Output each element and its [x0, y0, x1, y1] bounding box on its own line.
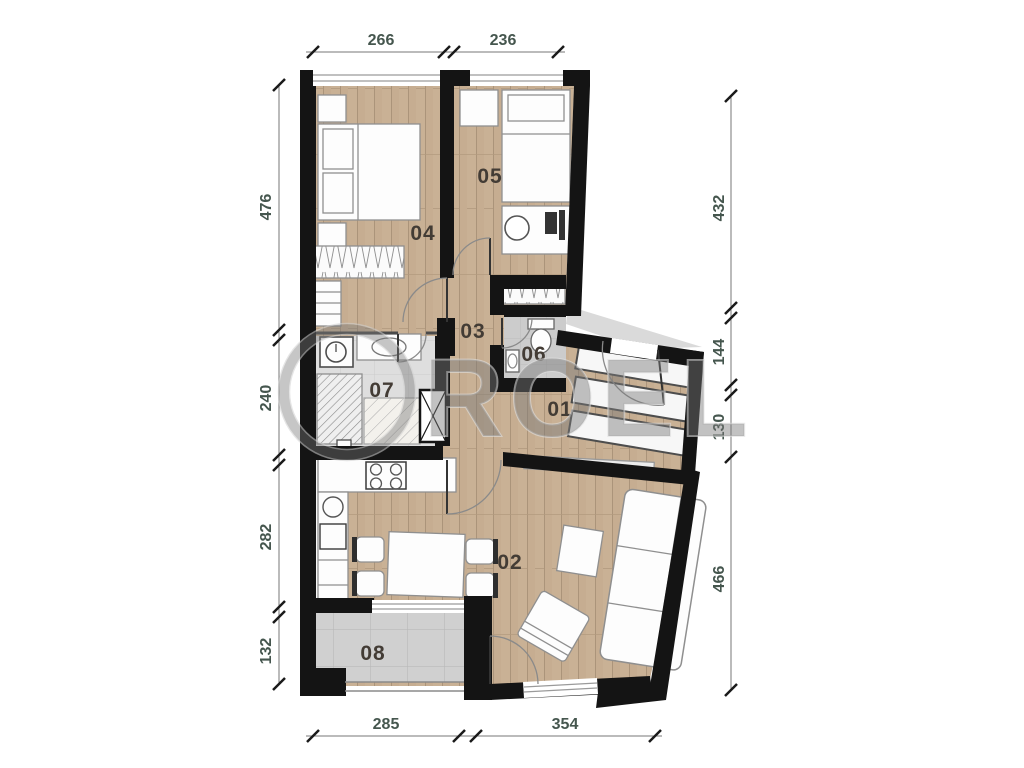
- floor-plan-canvas: 01 02 03 04 05 06 07 08: [0, 0, 1024, 768]
- wall-05-bottom: [490, 275, 566, 289]
- wall-left: [300, 70, 316, 696]
- washing-machine: [320, 337, 353, 367]
- wall-terrace-pier: [464, 596, 492, 700]
- shower: [317, 374, 362, 444]
- watermark-text: ROEL: [424, 337, 754, 460]
- wall-wc-top: [504, 305, 566, 317]
- dim-left-1: 476: [258, 194, 275, 221]
- wall-04-05: [440, 86, 454, 278]
- dim-left-4: 132: [258, 638, 275, 665]
- wall-terrace-corner: [300, 668, 346, 696]
- window-05: [470, 70, 563, 86]
- coffee-table: [557, 525, 604, 577]
- wall-terrace-divider: [316, 598, 374, 613]
- floor-plan-page: 01 02 03 04 05 06 07 08: [0, 0, 1024, 768]
- dim-left-3: 282: [258, 524, 275, 551]
- wall-wc-left-a: [490, 289, 504, 315]
- desk: [502, 206, 570, 254]
- dim-left-2: 240: [258, 385, 275, 412]
- room-label-05: 05: [477, 165, 502, 188]
- dim-bottom-1: 285: [373, 716, 400, 733]
- window-terrace: [372, 600, 464, 613]
- dim-right-4: 466: [711, 566, 728, 593]
- room-label-07: 07: [369, 379, 394, 402]
- room-label-08: 08: [360, 642, 385, 665]
- dim-top-1: 266: [368, 32, 395, 49]
- room-label-04: 04: [410, 222, 435, 245]
- room-label-02: 02: [497, 551, 522, 574]
- dim-bottom-2: 354: [552, 716, 579, 733]
- dim-right-1: 432: [711, 195, 728, 222]
- dim-top-2: 236: [490, 32, 517, 49]
- window-04: [313, 70, 440, 86]
